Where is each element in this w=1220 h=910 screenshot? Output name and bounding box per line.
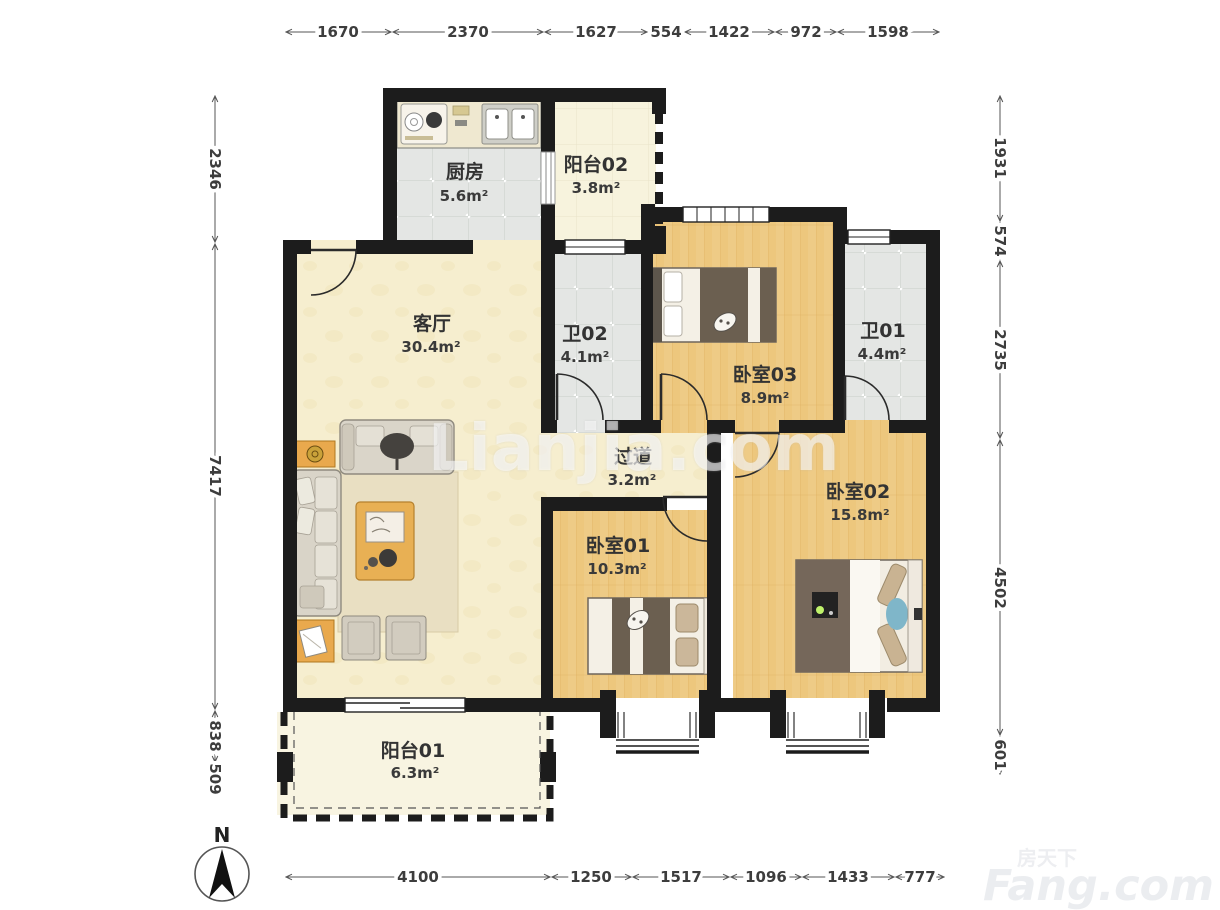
dim-top-5: 972 (790, 23, 821, 41)
sofa-left (293, 470, 341, 616)
bay-window-bedroom02 (786, 712, 869, 752)
dim-right-4: 601 (991, 739, 1009, 770)
living-balcony-sliding-door (345, 698, 465, 712)
sofa-top (340, 420, 454, 474)
dim-right-0: 1931 (991, 137, 1009, 179)
dim-top-4: 1422 (708, 23, 750, 41)
area-living: 30.4m² (401, 338, 460, 356)
label-bedroom03: 卧室03 (733, 363, 797, 386)
label-kitchen: 厨房 (446, 160, 484, 183)
small-table-book (294, 620, 334, 662)
floorplan-drawing: 1670 2370 1627 554 1422 972 1598 4100 12… (0, 0, 1220, 910)
dim-top-1: 2370 (447, 23, 489, 41)
label-hallway: 过道 (614, 445, 652, 468)
dim-left-0: 2346 (206, 148, 224, 190)
bedroom03-bed (646, 268, 776, 342)
dim-bottom-5: 777 (904, 868, 935, 886)
compass-needle (209, 849, 235, 898)
label-bath02: 卫02 (562, 323, 607, 345)
label-bedroom01: 卧室01 (586, 534, 650, 557)
dim-top-6: 1598 (867, 23, 909, 41)
kitchen-balcony02-opening (541, 152, 555, 204)
bedroom03-top-window (683, 207, 769, 222)
label-living: 客厅 (413, 312, 451, 335)
bath02-top-window (565, 240, 625, 254)
compass: N (195, 823, 249, 901)
dim-top-2: 1627 (575, 23, 617, 41)
dim-bottom-4: 1433 (827, 868, 869, 886)
dim-bottom-0: 4100 (397, 868, 439, 886)
dim-right-3: 4502 (991, 567, 1009, 609)
dim-bottom-2: 1517 (660, 868, 702, 886)
bedroom02-bed (796, 560, 922, 672)
area-bath02: 4.1m² (561, 348, 610, 366)
area-bath01: 4.4m² (858, 345, 907, 363)
bay-window-bedroom01 (616, 712, 699, 752)
dim-right-2: 2735 (991, 329, 1009, 371)
side-table-lamp (295, 441, 335, 467)
label-balcony01: 阳台01 (381, 739, 445, 762)
area-hallway: 3.2m² (608, 471, 657, 489)
coffee-table (356, 502, 414, 580)
label-balcony02: 阳台02 (564, 153, 628, 176)
area-bedroom03: 8.9m² (741, 389, 790, 407)
area-balcony01: 6.3m² (391, 764, 440, 782)
area-bedroom02: 15.8m² (830, 506, 889, 524)
dim-right-1: 574 (991, 225, 1009, 256)
dim-bottom-1: 1250 (570, 868, 612, 886)
bedroom01-bed (588, 598, 720, 674)
dim-top-0: 1670 (317, 23, 359, 41)
label-bath01: 卫01 (860, 320, 905, 342)
area-balcony02: 3.8m² (572, 179, 621, 197)
kitchen-counter (397, 100, 541, 148)
dim-left-1: 7417 (206, 455, 224, 497)
label-bedroom02: 卧室02 (826, 480, 890, 503)
area-bedroom01: 10.3m² (587, 560, 646, 578)
dim-top-3: 554 (650, 23, 681, 41)
dim-left-3: 509 (206, 763, 224, 794)
dim-bottom-3: 1096 (745, 868, 787, 886)
area-kitchen: 5.6m² (440, 187, 489, 205)
living-room-furniture (293, 420, 458, 662)
bath01-top-window (848, 230, 890, 244)
north-label: N (214, 823, 231, 847)
floorplan-canvas: 1670 2370 1627 554 1422 972 1598 4100 12… (0, 0, 1220, 910)
dim-left-2: 838 (206, 720, 224, 751)
